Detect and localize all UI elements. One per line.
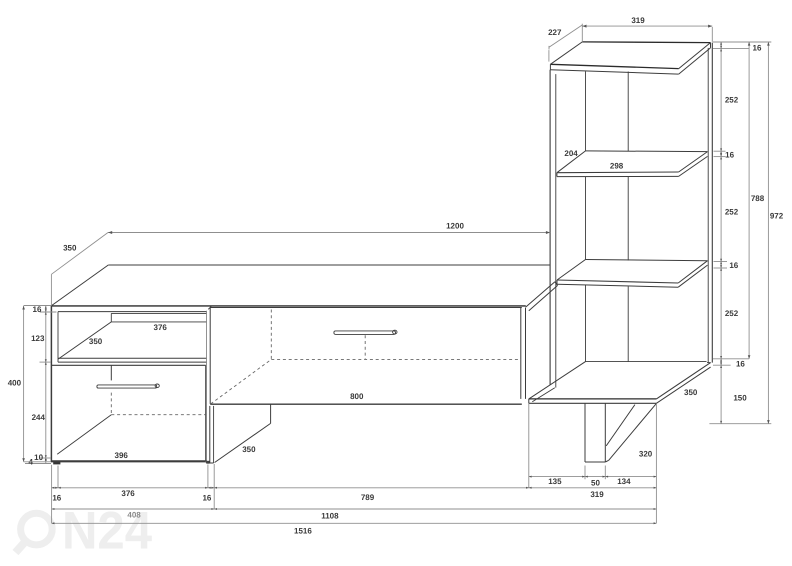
svg-text:16: 16 bbox=[736, 360, 745, 369]
svg-text:16: 16 bbox=[202, 493, 211, 502]
svg-text:396: 396 bbox=[115, 451, 129, 460]
svg-text:789: 789 bbox=[361, 493, 375, 502]
svg-text:400: 400 bbox=[8, 379, 22, 388]
svg-text:10: 10 bbox=[34, 453, 43, 462]
svg-text:244: 244 bbox=[32, 413, 46, 422]
svg-text:350: 350 bbox=[63, 243, 77, 252]
svg-text:1516: 1516 bbox=[294, 527, 312, 536]
svg-text:788: 788 bbox=[751, 194, 765, 203]
svg-text:150: 150 bbox=[733, 394, 747, 403]
svg-text:408: 408 bbox=[127, 510, 141, 519]
svg-text:350: 350 bbox=[684, 388, 698, 397]
svg-text:16: 16 bbox=[729, 261, 738, 270]
svg-text:350: 350 bbox=[242, 445, 256, 454]
svg-text:319: 319 bbox=[590, 490, 604, 499]
svg-text:135: 135 bbox=[548, 477, 562, 486]
svg-text:1108: 1108 bbox=[321, 511, 339, 520]
svg-text:376: 376 bbox=[121, 489, 135, 498]
svg-text:50: 50 bbox=[591, 478, 600, 487]
svg-text:252: 252 bbox=[725, 207, 739, 216]
svg-text:227: 227 bbox=[548, 28, 562, 37]
svg-text:204: 204 bbox=[564, 149, 578, 158]
svg-text:319: 319 bbox=[631, 16, 645, 25]
svg-text:298: 298 bbox=[610, 162, 624, 171]
svg-text:800: 800 bbox=[350, 392, 364, 401]
svg-text:376: 376 bbox=[154, 323, 168, 332]
svg-text:16: 16 bbox=[52, 494, 61, 503]
svg-text:252: 252 bbox=[725, 309, 739, 318]
svg-text:16: 16 bbox=[753, 44, 762, 53]
svg-text:320: 320 bbox=[639, 450, 653, 459]
svg-text:1200: 1200 bbox=[446, 221, 464, 230]
svg-text:252: 252 bbox=[725, 95, 739, 104]
svg-text:350: 350 bbox=[89, 337, 103, 346]
svg-text:16: 16 bbox=[33, 305, 42, 314]
svg-text:16: 16 bbox=[725, 151, 734, 160]
svg-text:123: 123 bbox=[31, 334, 45, 343]
svg-text:134: 134 bbox=[617, 477, 631, 486]
svg-text:972: 972 bbox=[770, 211, 784, 220]
